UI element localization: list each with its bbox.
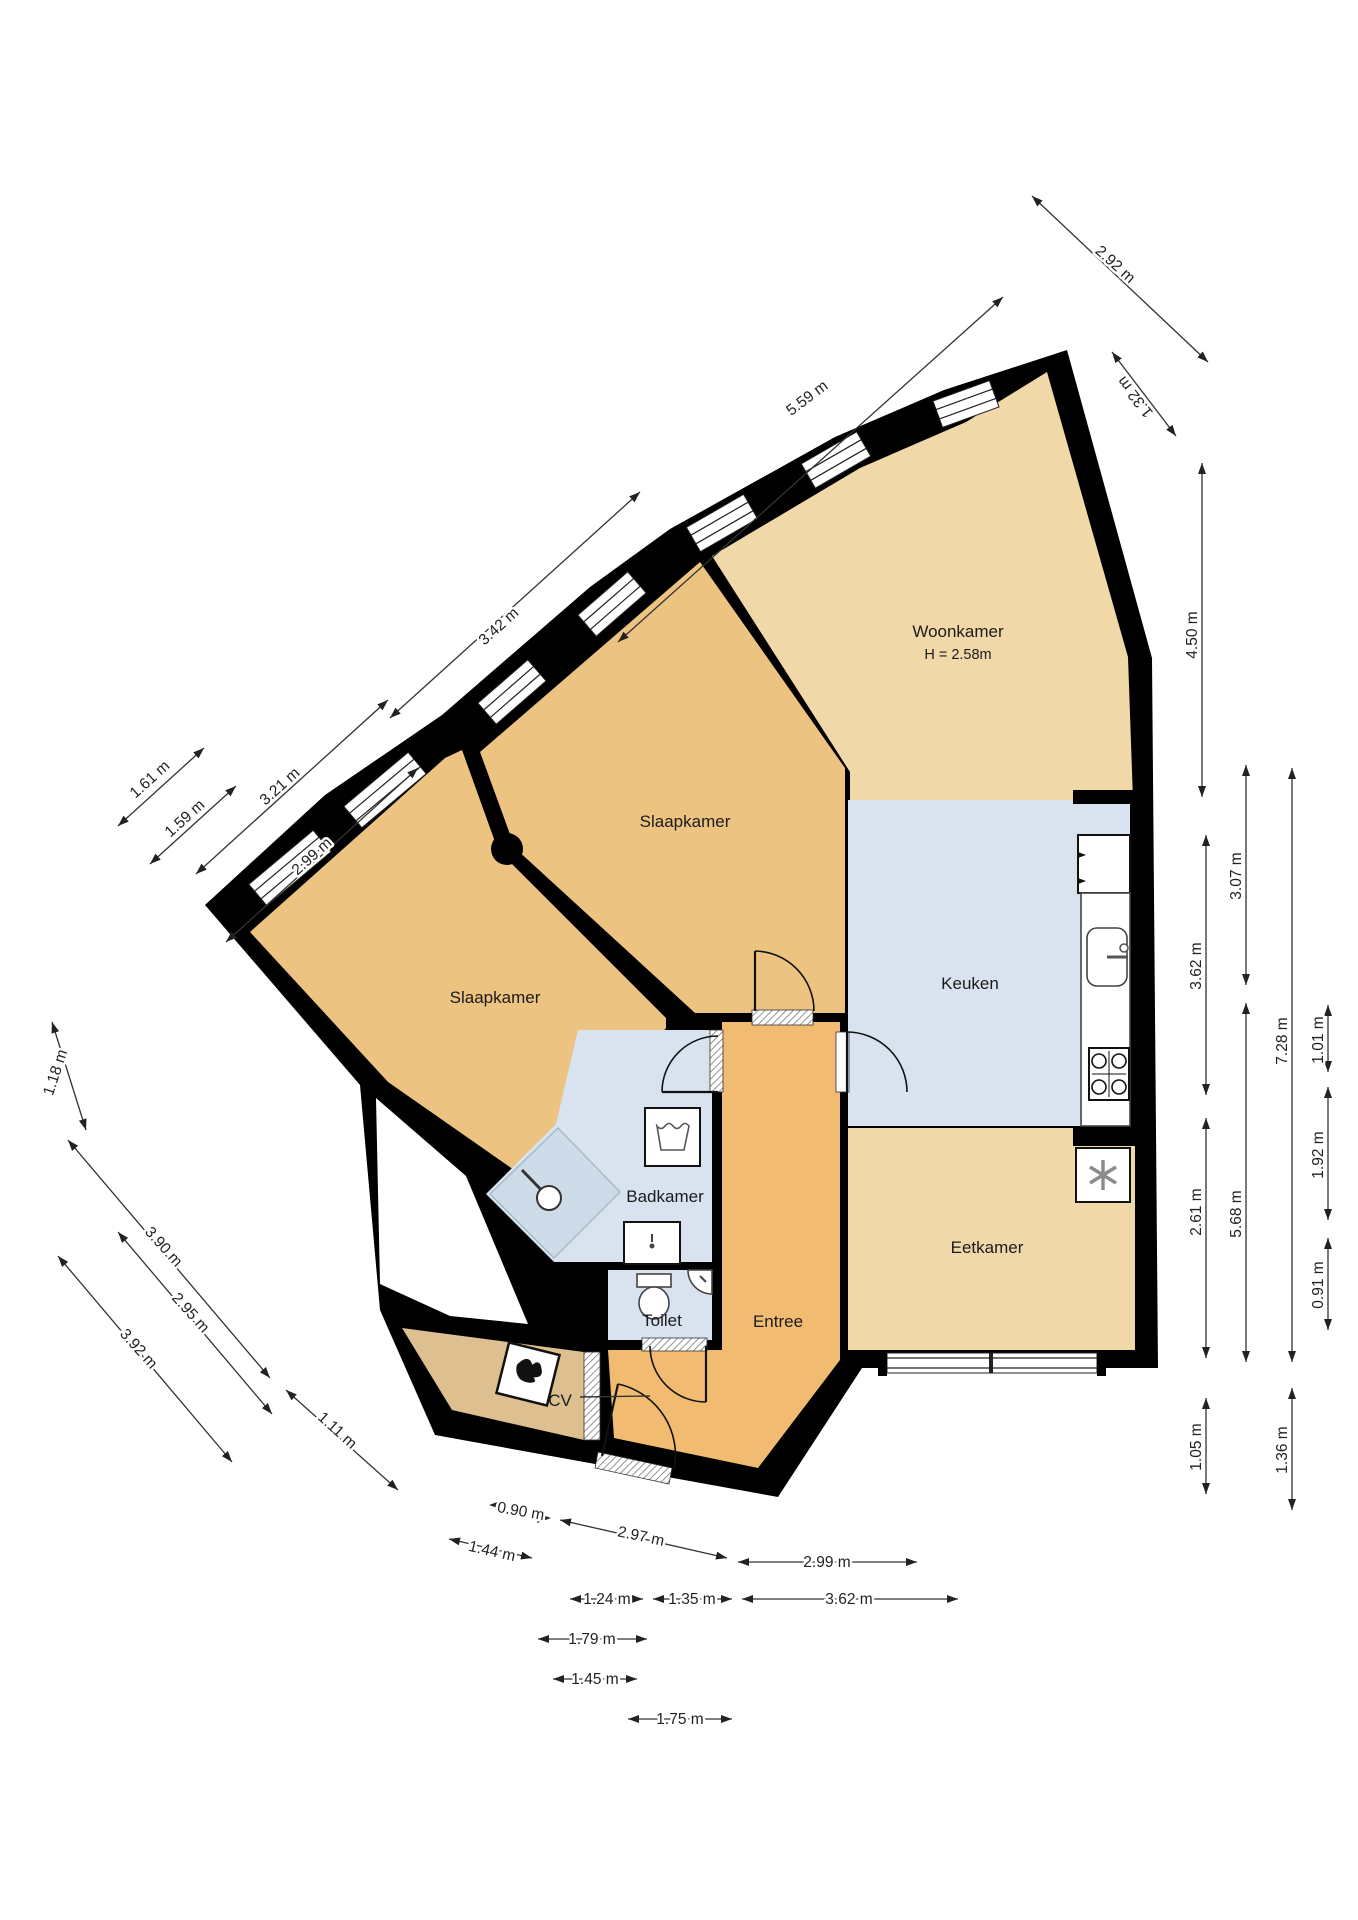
dimension-label: 3.07 m — [1228, 852, 1245, 899]
dimension-label: 1.61 m — [127, 757, 174, 801]
dimension-label: 3.62 m — [1188, 942, 1205, 989]
room-label-woonkamer-height: H = 2.58m — [924, 647, 991, 663]
dimension-label: 1.11 m — [314, 1409, 360, 1453]
dimension-label: 1.79 m — [568, 1631, 615, 1648]
washbasin-icon — [624, 1222, 680, 1264]
dimension-label: 1.24 m — [583, 1591, 630, 1608]
fridge-snowflake-icon — [1076, 1148, 1130, 1202]
dimension-label: 3.42 m — [476, 604, 523, 648]
dimension-label: 1.05 m — [1188, 1423, 1205, 1470]
room-label-slaapkamer-top: Slaapkamer — [640, 812, 731, 831]
room-label-cv: CV — [548, 1391, 572, 1410]
dimension-label: 2.97 m — [616, 1523, 666, 1549]
dimension-label: 2.95 m — [168, 1290, 212, 1337]
washing-machine-icon — [645, 1108, 700, 1166]
dimension-label: 5.68 m — [1228, 1190, 1245, 1237]
cv-leader-line — [580, 1396, 650, 1397]
dimension-label: 1.44 m — [467, 1538, 517, 1565]
dimension-label: 1.32 m — [1114, 373, 1157, 421]
dimension-label: 1.36 m — [1274, 1426, 1291, 1473]
room-label-keuken: Keuken — [941, 974, 999, 993]
room-label-woonkamer: Woonkamer — [912, 622, 1004, 641]
dimension-label: 2.92 m — [1092, 242, 1139, 286]
dimension-label: 3.92 m — [116, 1326, 160, 1373]
dimension-label: 0.90 m — [496, 1499, 546, 1524]
dimension-label: 4.50 m — [1184, 611, 1201, 658]
dimension-label: 1.75 m — [656, 1711, 703, 1728]
door-opening — [642, 1338, 707, 1351]
dimension-label: 1.01 m — [1310, 1016, 1327, 1063]
dimension-label: 1.45 m — [571, 1671, 618, 1688]
window-icon — [878, 1350, 1106, 1376]
kitchen-sink-icon — [1087, 928, 1128, 986]
dimension-label: 2.61 m — [1188, 1188, 1205, 1235]
floor-plan: Woonkamer H = 2.58m Slaapkamer Slaapkame… — [0, 0, 1358, 1920]
dimension-label: 1.92 m — [1310, 1131, 1327, 1178]
door-opening — [752, 1010, 813, 1025]
dimension-label: 7.28 m — [1274, 1017, 1291, 1064]
door-opening — [584, 1352, 600, 1440]
dimension-label: 2.99 m — [803, 1554, 850, 1571]
wall-stub-keuken-bottom — [1073, 1126, 1135, 1146]
dimension-label: 1.59 m — [162, 796, 209, 840]
room-label-slaapkamer-left: Slaapkamer — [450, 988, 541, 1007]
room-label-toilet: Toilet — [642, 1311, 682, 1330]
column-icon — [491, 833, 523, 865]
wall-stub-keuken-top — [1073, 790, 1135, 804]
dimension-label: 1.35 m — [668, 1591, 715, 1608]
dimension-label: 5.59 m — [783, 377, 831, 419]
room-label-entree: Entree — [753, 1312, 803, 1331]
room-label-badkamer: Badkamer — [626, 1187, 704, 1206]
room-label-eetkamer: Eetkamer — [951, 1238, 1024, 1257]
dimension-label: 3.62 m — [825, 1591, 872, 1608]
door-opening — [710, 1030, 723, 1092]
dimension-label: 0.91 m — [1310, 1261, 1327, 1308]
dimension-label: 3.90 m — [141, 1224, 185, 1271]
stove-icon — [1089, 1048, 1129, 1100]
dimension-label: 3.21 m — [257, 764, 304, 808]
floor-plan-svg: Woonkamer H = 2.58m Slaapkamer Slaapkame… — [0, 0, 1358, 1920]
dimension-label: 1.18 m — [40, 1047, 71, 1097]
